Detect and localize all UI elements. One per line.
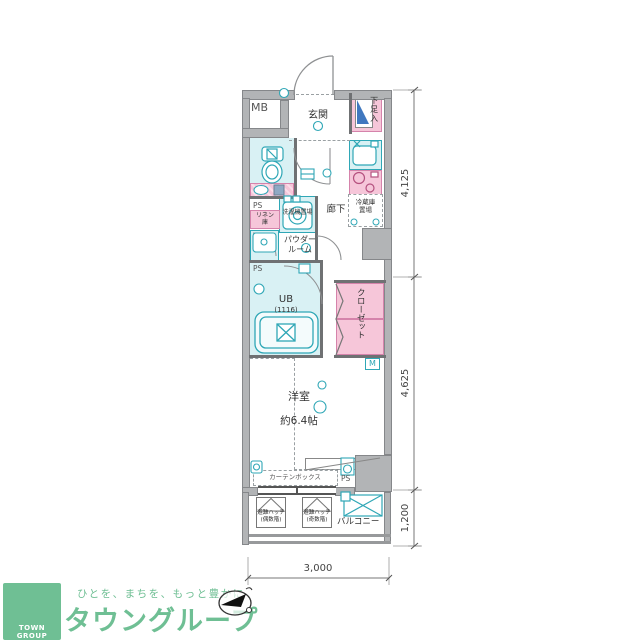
vanity-fixture	[253, 233, 276, 252]
outdoor-unit	[341, 492, 382, 516]
water-heater	[341, 458, 354, 475]
powder-label-line1: パウダー	[280, 235, 320, 245]
washer-label: 洗濯機置場	[279, 209, 316, 216]
hatch-even-label-line1: 避難ハッチ	[255, 510, 287, 517]
bath-light	[254, 284, 264, 294]
hallway-label: 廊下	[322, 204, 350, 215]
meter-label: M	[365, 359, 380, 369]
entrance-door-arc	[294, 56, 333, 95]
hand-basin	[254, 186, 268, 195]
closet-label: クローゼット	[355, 288, 365, 352]
shoe-box-triangle	[357, 100, 369, 124]
closet-folding-door	[336, 284, 343, 355]
logo-company-name: タウングループ	[64, 599, 258, 638]
room-size-label: 約6.4帖	[275, 415, 323, 428]
hatch-even-label-line2: (偶数階)	[255, 517, 287, 524]
fridge-feet	[351, 219, 379, 225]
wall-outlet	[251, 461, 262, 473]
dimension-right-bottom: 1,200	[400, 488, 411, 548]
bathtub-fixture	[255, 312, 318, 353]
fridge-label-line2: 置場	[350, 207, 381, 215]
genkan-label: 玄関	[303, 110, 333, 122]
curtain-box-label: カーテンボックス	[255, 474, 335, 482]
ps-label: PS	[341, 474, 350, 483]
ps-label: PS	[253, 264, 262, 273]
kitchen-sink-fixture	[353, 141, 378, 165]
balcony-label: バルコニー	[337, 517, 379, 527]
counter-cabinet	[274, 185, 284, 195]
ps-label: PS	[253, 201, 262, 210]
stove-burners	[354, 172, 379, 192]
hatch-odd-label-line2: (奇数階)	[301, 517, 333, 524]
unit-bath-label: UB	[271, 294, 301, 306]
unit-bath-size-label: (1116)	[268, 306, 304, 314]
shoe-box-label: 下足入	[369, 96, 379, 132]
floor-plan-canvas: MB 玄関 下足入 廊下 冷蔵庫 置場 PS リネン 庫 洗濯機置場 パウダー …	[0, 0, 640, 640]
toilet-fixture	[262, 147, 283, 183]
dimension-right-middle: 4,625	[400, 353, 411, 413]
hatch-odd-label-line1: 避難ハッチ	[301, 510, 333, 517]
linen-label-line2: 庫	[251, 219, 279, 226]
town-group-badge-text: TOWN GROUP	[3, 624, 61, 640]
dimension-bottom: 3,000	[288, 563, 348, 574]
room-label: 洋室	[283, 390, 315, 403]
dimension-right-top: 4,125	[400, 153, 411, 213]
intercom-panel	[301, 169, 314, 179]
mb-label: MB	[251, 101, 279, 114]
powder-label-line2: ルーム	[280, 245, 320, 255]
plan-linework	[0, 0, 640, 640]
bath-vent	[299, 264, 310, 273]
powder-door-arc	[317, 236, 341, 260]
